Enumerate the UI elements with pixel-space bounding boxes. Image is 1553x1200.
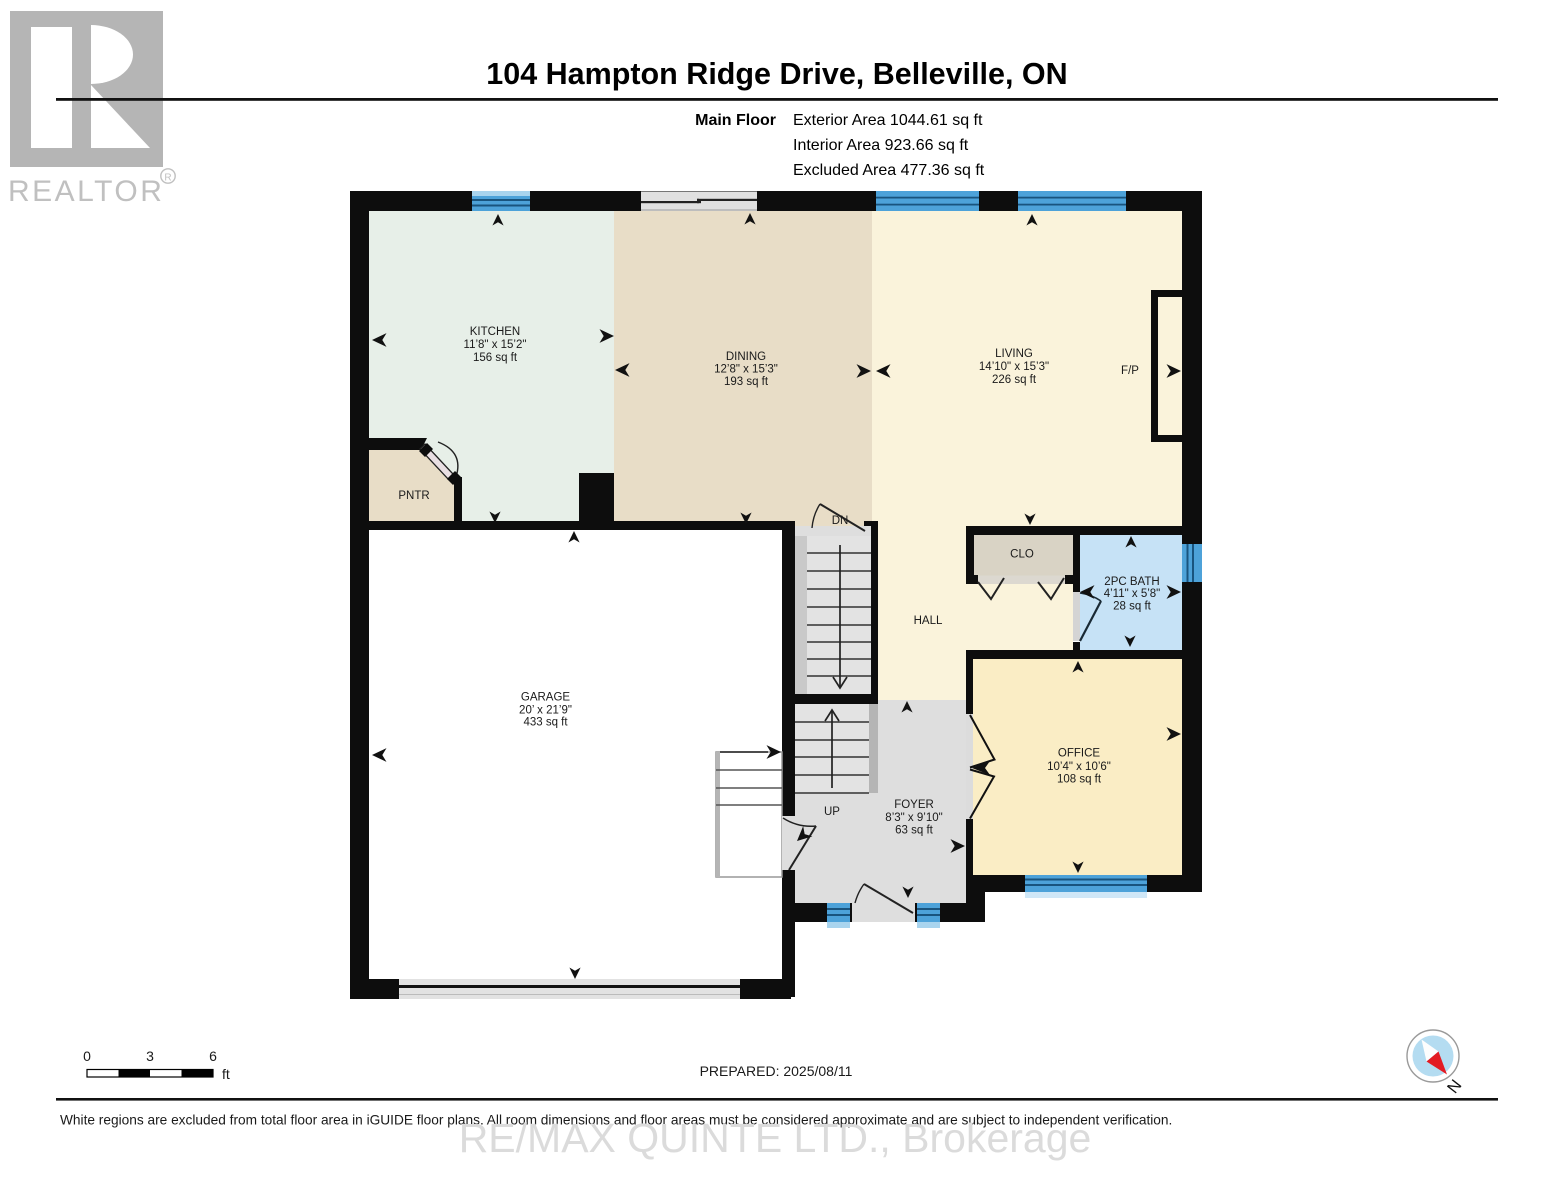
svg-text:DINING: DINING [726, 351, 766, 363]
svg-text:10’4" x 10’6": 10’4" x 10’6" [1047, 761, 1111, 773]
svg-text:14’10" x 15’3": 14’10" x 15’3" [979, 361, 1049, 373]
svg-text:N: N [1444, 1076, 1466, 1096]
svg-text:GARAGE: GARAGE [521, 692, 571, 704]
svg-text:4’11" x 5’8": 4’11" x 5’8" [1104, 588, 1161, 600]
svg-text:226 sq ft: 226 sq ft [992, 374, 1037, 386]
svg-text:HALL: HALL [914, 615, 943, 627]
svg-text:108 sq ft: 108 sq ft [1057, 774, 1102, 786]
svg-text:8’3" x 9’10": 8’3" x 9’10" [885, 812, 942, 824]
svg-text:F/P: F/P [1121, 365, 1139, 377]
svg-text:63 sq ft: 63 sq ft [895, 825, 934, 837]
svg-text:2PC BATH: 2PC BATH [1104, 576, 1159, 588]
svg-text:CLO: CLO [1010, 549, 1034, 561]
svg-text:OFFICE: OFFICE [1058, 748, 1100, 760]
svg-text:12’8" x 15’3": 12’8" x 15’3" [714, 364, 778, 376]
svg-text:Main Floor: Main Floor [695, 112, 776, 129]
svg-text:Interior Area 923.66 sq ft: Interior Area 923.66 sq ft [793, 137, 969, 154]
svg-text:104 Hampton Ridge Drive, Belle: 104 Hampton Ridge Drive, Belleville, ON [486, 57, 1067, 91]
svg-text:LIVING: LIVING [995, 348, 1033, 360]
svg-text:UP: UP [824, 806, 840, 818]
svg-text:3: 3 [146, 1048, 154, 1064]
svg-text:R: R [164, 173, 171, 184]
svg-text:Exterior Area 1044.61 sq ft: Exterior Area 1044.61 sq ft [793, 112, 983, 129]
svg-text:433 sq ft: 433 sq ft [523, 717, 568, 729]
svg-text:KITCHEN: KITCHEN [470, 326, 520, 338]
svg-text:ft: ft [222, 1066, 230, 1082]
svg-text:RE/MAX QUINTE LTD., Brokerage: RE/MAX QUINTE LTD., Brokerage [459, 1115, 1092, 1161]
svg-text:DN: DN [832, 515, 849, 527]
svg-text:193 sq ft: 193 sq ft [724, 376, 769, 388]
svg-text:20’ x 21’9": 20’ x 21’9" [519, 705, 572, 717]
svg-text:6: 6 [209, 1048, 217, 1064]
svg-text:FOYER: FOYER [894, 799, 934, 811]
svg-text:REALTOR: REALTOR [8, 175, 164, 208]
svg-text:156 sq ft: 156 sq ft [473, 352, 518, 364]
svg-text:PREPARED: 2025/08/11: PREPARED: 2025/08/11 [700, 1063, 853, 1079]
svg-text:Excluded Area 477.36 sq ft: Excluded Area 477.36 sq ft [793, 162, 985, 179]
svg-text:28 sq ft: 28 sq ft [1113, 601, 1152, 613]
svg-text:11’8" x 15’2": 11’8" x 15’2" [464, 339, 527, 351]
svg-text:PNTR: PNTR [398, 490, 429, 502]
svg-text:0: 0 [83, 1048, 91, 1064]
